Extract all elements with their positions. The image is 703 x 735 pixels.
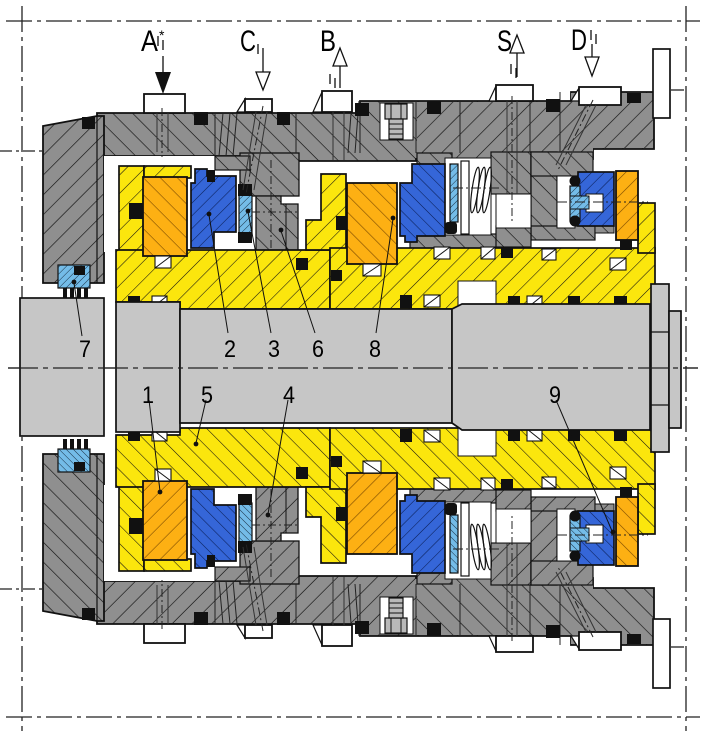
svg-text:A: A (141, 25, 158, 58)
svg-text:1: 1 (142, 382, 154, 409)
svg-text:9: 9 (549, 382, 561, 409)
svg-text:D: D (571, 24, 587, 57)
svg-text:3: 3 (268, 336, 280, 363)
svg-text:6: 6 (312, 336, 324, 363)
svg-text:8: 8 (369, 336, 381, 363)
svg-text:C: C (240, 25, 256, 58)
svg-text:7: 7 (79, 336, 91, 363)
svg-text:*: * (159, 27, 165, 43)
svg-text:4: 4 (283, 382, 295, 409)
svg-text:2: 2 (224, 336, 236, 363)
svg-text:5: 5 (201, 382, 213, 409)
svg-text:B: B (320, 25, 336, 58)
